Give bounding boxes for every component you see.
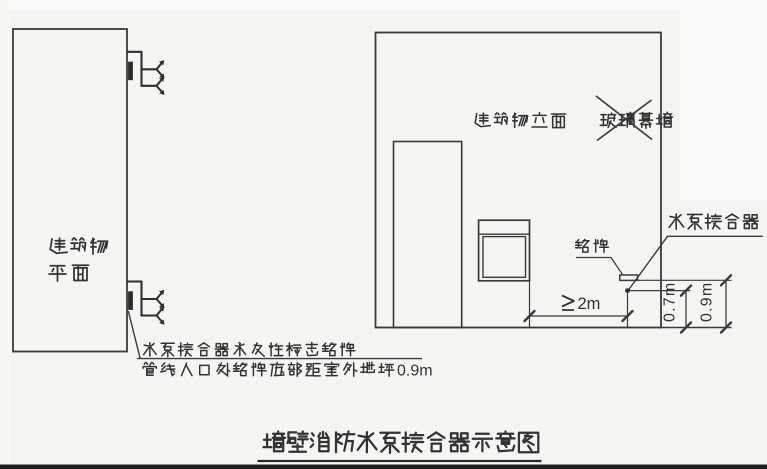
svg-text:2m: 2m (578, 295, 601, 313)
svg-text:0.7m: 0.7m (662, 282, 679, 322)
svg-text:0.9m: 0.9m (397, 363, 433, 380)
svg-text:0.9m: 0.9m (699, 282, 716, 322)
